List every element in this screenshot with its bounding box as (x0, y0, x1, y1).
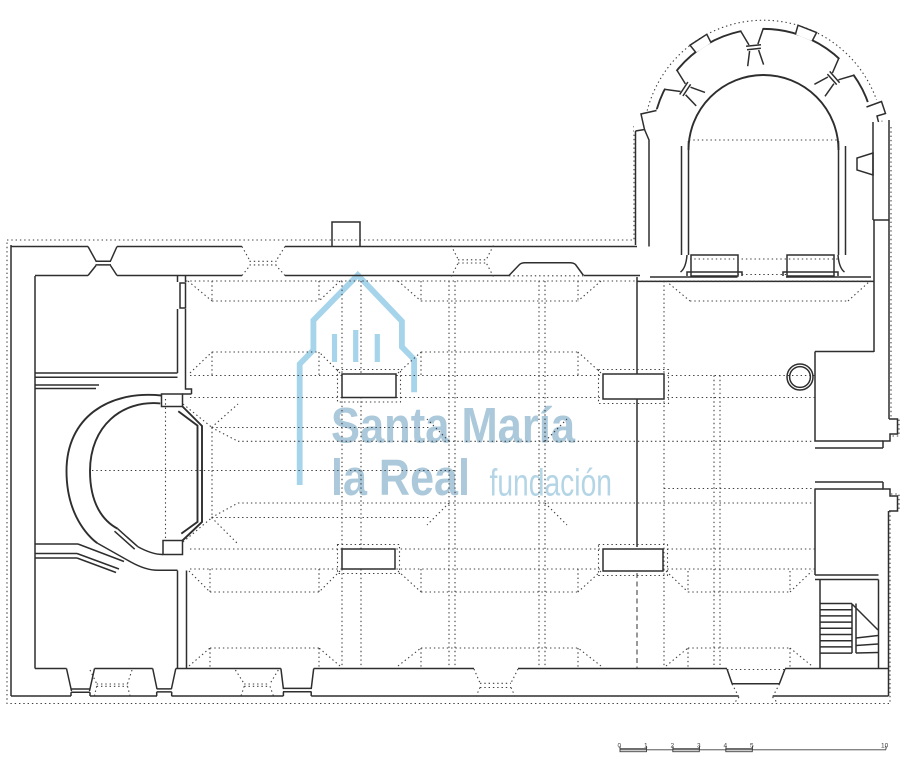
svg-text:2: 2 (671, 743, 675, 750)
svg-text:fundación: fundación (490, 463, 613, 505)
svg-text:5: 5 (750, 743, 754, 750)
svg-text:10: 10 (881, 743, 889, 750)
svg-text:4: 4 (724, 743, 728, 750)
svg-text:0: 0 (618, 743, 622, 750)
svg-text:1: 1 (644, 743, 648, 750)
svg-text:3: 3 (697, 743, 701, 750)
